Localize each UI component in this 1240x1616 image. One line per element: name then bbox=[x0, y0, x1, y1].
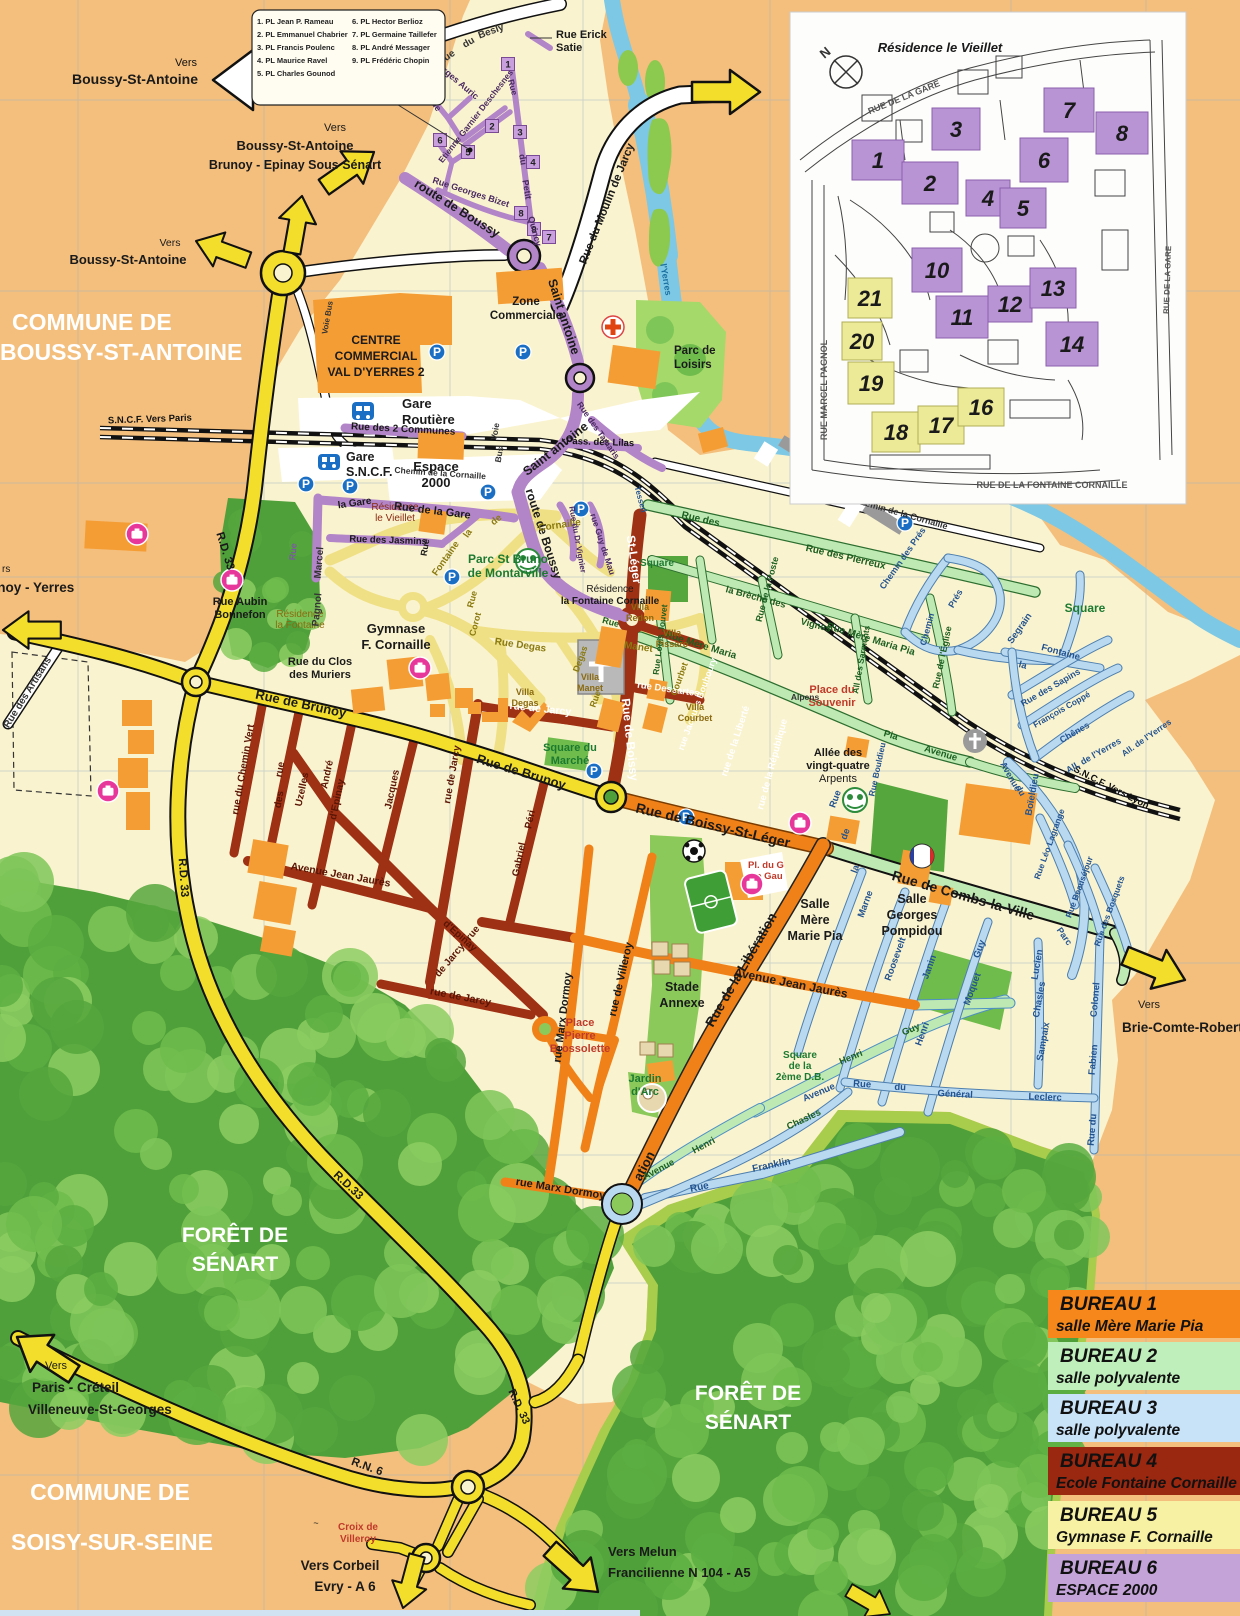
svg-text:Jardin: Jardin bbox=[628, 1073, 661, 1085]
svg-text:Mère: Mère bbox=[800, 913, 829, 927]
svg-text:2ème D.B.: 2ème D.B. bbox=[776, 1072, 825, 1083]
svg-text:le Vieillet: le Vieillet bbox=[375, 513, 415, 524]
svg-text:6: 6 bbox=[437, 136, 442, 147]
svg-text:BOUSSY-ST-ANTOINE: BOUSSY-ST-ANTOINE bbox=[0, 339, 242, 365]
svg-text:des Muriers: des Muriers bbox=[289, 669, 351, 681]
svg-text:Croix de: Croix de bbox=[338, 1522, 378, 1533]
svg-text:salle polyvalente: salle polyvalente bbox=[1056, 1370, 1180, 1387]
svg-text:Vers: Vers bbox=[1138, 999, 1161, 1011]
svg-text:P: P bbox=[519, 345, 527, 359]
svg-text:~: ~ bbox=[313, 1518, 318, 1528]
svg-text:Vers: Vers bbox=[175, 57, 198, 69]
svg-text:Square: Square bbox=[1065, 601, 1106, 615]
svg-text:Georges: Georges bbox=[887, 908, 938, 922]
svg-text:SÉNART: SÉNART bbox=[192, 1253, 279, 1276]
svg-text:P: P bbox=[590, 764, 598, 778]
svg-text:Gare: Gare bbox=[346, 450, 375, 464]
svg-text:7. PL Germaine Taillefer: 7. PL Germaine Taillefer bbox=[352, 30, 437, 39]
svg-text:VAL D'YERRES 2: VAL D'YERRES 2 bbox=[327, 365, 424, 379]
svg-text:Square: Square bbox=[640, 558, 674, 569]
svg-text:7: 7 bbox=[1063, 98, 1077, 123]
svg-text:2. PL Emmanuel Chabrier: 2. PL Emmanuel Chabrier bbox=[257, 30, 348, 39]
svg-text:Résidence le Vieillet: Résidence le Vieillet bbox=[878, 40, 1003, 55]
svg-text:rs: rs bbox=[2, 564, 10, 575]
svg-text:5. PL Charles Gounod: 5. PL Charles Gounod bbox=[257, 69, 336, 78]
svg-text:8: 8 bbox=[518, 209, 523, 220]
svg-text:BUREAU 5: BUREAU 5 bbox=[1060, 1505, 1158, 1526]
svg-text:P: P bbox=[302, 477, 310, 491]
svg-text:Vers Melun: Vers Melun bbox=[608, 1544, 677, 1559]
svg-text:1. PL Jean P. Rameau: 1. PL Jean P. Rameau bbox=[257, 17, 334, 26]
svg-text:Commerciale: Commerciale bbox=[490, 310, 562, 322]
svg-text:19: 19 bbox=[859, 371, 884, 396]
svg-text:Marie Pia: Marie Pia bbox=[788, 929, 844, 943]
svg-text:5: 5 bbox=[1017, 196, 1030, 221]
svg-text:Rue Erick: Rue Erick bbox=[556, 29, 608, 41]
svg-text:SOISY-SUR-SEINE: SOISY-SUR-SEINE bbox=[11, 1529, 213, 1555]
svg-text:du: du bbox=[894, 1082, 906, 1094]
svg-text:3: 3 bbox=[517, 128, 522, 139]
svg-text:Boussy-St-Antoine: Boussy-St-Antoine bbox=[72, 71, 198, 87]
svg-text:Alpens: Alpens bbox=[791, 692, 820, 702]
svg-text:BUREAU 4: BUREAU 4 bbox=[1060, 1451, 1158, 1472]
svg-text:Villa: Villa bbox=[581, 672, 600, 682]
svg-text:COMMUNE DE: COMMUNE DE bbox=[12, 309, 172, 335]
svg-text:20: 20 bbox=[849, 329, 875, 354]
svg-text:Loisirs: Loisirs bbox=[674, 359, 712, 371]
svg-text:Résidence: Résidence bbox=[586, 584, 634, 595]
svg-text:SÉNART: SÉNART bbox=[705, 1411, 792, 1434]
svg-text:Square du: Square du bbox=[543, 742, 597, 754]
svg-text:6: 6 bbox=[1038, 148, 1051, 173]
svg-text:RUE DE LA FONTAINE CORNAILLE: RUE DE LA FONTAINE CORNAILLE bbox=[977, 480, 1128, 490]
svg-text:COMMERCIAL: COMMERCIAL bbox=[335, 349, 418, 363]
svg-text:Villa: Villa bbox=[663, 628, 682, 638]
svg-text:3. PL Francis Poulenc: 3. PL Francis Poulenc bbox=[257, 43, 335, 52]
svg-text:13: 13 bbox=[1041, 276, 1065, 301]
svg-text:3: 3 bbox=[950, 117, 962, 142]
svg-text:Allée des: Allée des bbox=[814, 747, 862, 759]
svg-text:P: P bbox=[346, 479, 354, 493]
svg-text:Villeroy: Villeroy bbox=[340, 1534, 376, 1545]
svg-text:P: P bbox=[484, 485, 492, 499]
svg-text:COMMUNE DE: COMMUNE DE bbox=[30, 1479, 190, 1505]
svg-text:Redon: Redon bbox=[626, 613, 654, 623]
svg-text:Général: Général bbox=[937, 1088, 973, 1101]
svg-text:Rue Aubin: Rue Aubin bbox=[213, 596, 268, 608]
svg-text:Pierre: Pierre bbox=[564, 1030, 595, 1042]
svg-text:12: 12 bbox=[998, 292, 1023, 317]
svg-text:Rue: Rue bbox=[287, 543, 298, 561]
svg-text:Rue du Clos: Rue du Clos bbox=[288, 656, 352, 668]
svg-text:Marché: Marché bbox=[551, 755, 590, 767]
svg-text:BUREAU 2: BUREAU 2 bbox=[1060, 1346, 1158, 1367]
svg-text:Vers Corbeil: Vers Corbeil bbox=[301, 1558, 380, 1573]
svg-text:Salle: Salle bbox=[897, 892, 926, 906]
svg-text:17: 17 bbox=[929, 413, 955, 438]
svg-text:Brunoy - Epinay Sous Sénart: Brunoy - Epinay Sous Sénart bbox=[209, 158, 382, 172]
svg-text:P: P bbox=[433, 345, 441, 359]
svg-text:Vers: Vers bbox=[324, 122, 347, 134]
svg-text:Paris - Créteil: Paris - Créteil bbox=[32, 1380, 119, 1395]
svg-text:P: P bbox=[448, 570, 456, 584]
svg-text:Stade: Stade bbox=[665, 980, 699, 994]
svg-text:Villa: Villa bbox=[631, 602, 650, 612]
svg-text:vingt-quatre: vingt-quatre bbox=[806, 760, 870, 772]
svg-text:Pompidou: Pompidou bbox=[881, 924, 942, 938]
svg-text:1: 1 bbox=[872, 148, 884, 173]
svg-text:Ecole Fontaine Cornaille: Ecole Fontaine Cornaille bbox=[1056, 1475, 1237, 1492]
svg-text:Leclerc: Leclerc bbox=[1028, 1091, 1062, 1103]
svg-text:Bonnefon: Bonnefon bbox=[214, 609, 266, 621]
svg-text:4: 4 bbox=[530, 158, 536, 169]
svg-text:Manet: Manet bbox=[577, 683, 603, 693]
svg-text:d'Arc: d'Arc bbox=[631, 1086, 659, 1098]
svg-text:Rue: Rue bbox=[853, 1079, 872, 1091]
svg-text:6. PL Hector Berlioz: 6. PL Hector Berlioz bbox=[352, 17, 423, 26]
svg-text:Salle: Salle bbox=[800, 897, 829, 911]
svg-text:Place: Place bbox=[566, 1017, 595, 1029]
svg-text:Gare: Gare bbox=[402, 396, 432, 411]
svg-text:Boussy-St-Antoine: Boussy-St-Antoine bbox=[237, 138, 354, 153]
svg-text:Square: Square bbox=[783, 1050, 817, 1061]
svg-text:Pissaro: Pissaro bbox=[656, 639, 689, 649]
svg-text:BUREAU 3: BUREAU 3 bbox=[1060, 1398, 1158, 1419]
svg-text:2: 2 bbox=[489, 122, 494, 133]
svg-text:Pl. du G: Pl. du G bbox=[748, 860, 784, 871]
svg-text:salle Mère Marie Pia: salle Mère Marie Pia bbox=[1056, 1318, 1204, 1335]
svg-text:8: 8 bbox=[1116, 121, 1129, 146]
svg-text:Villa: Villa bbox=[686, 702, 705, 712]
svg-text:BUREAU 6: BUREAU 6 bbox=[1060, 1558, 1158, 1579]
svg-text:du: du bbox=[517, 153, 529, 166]
svg-text:Brunoy - Yerres: Brunoy - Yerres bbox=[0, 580, 74, 595]
svg-text:Gymnase F. Cornaille: Gymnase F. Cornaille bbox=[1056, 1529, 1213, 1546]
svg-text:Zone: Zone bbox=[512, 296, 539, 308]
svg-text:8. PL André Messager: 8. PL André Messager bbox=[352, 43, 430, 52]
svg-text:S.N.C.F.: S.N.C.F. bbox=[346, 465, 393, 479]
svg-text:FORÊT DE: FORÊT DE bbox=[182, 1223, 288, 1247]
svg-text:Francilienne N 104 - A5: Francilienne N 104 - A5 bbox=[608, 1565, 751, 1580]
svg-text:11: 11 bbox=[951, 305, 974, 330]
svg-text:21: 21 bbox=[857, 286, 882, 311]
svg-text:Annexe: Annexe bbox=[659, 996, 704, 1010]
svg-text:de la: de la bbox=[789, 1061, 812, 1072]
svg-text:Brie-Comte-Robert: Brie-Comte-Robert bbox=[1122, 1020, 1240, 1035]
svg-text:RUE MARCEL PAGNOL: RUE MARCEL PAGNOL bbox=[819, 339, 829, 440]
svg-text:18: 18 bbox=[884, 420, 909, 445]
svg-text:Arpents: Arpents bbox=[819, 773, 857, 785]
svg-text:16: 16 bbox=[969, 395, 994, 420]
svg-text:CENTRE: CENTRE bbox=[351, 333, 400, 347]
svg-text:Vers: Vers bbox=[159, 237, 180, 249]
svg-text:de Montarville: de Montarville bbox=[468, 566, 549, 580]
svg-text:9. PL Frédéric Chopin: 9. PL Frédéric Chopin bbox=[352, 56, 430, 65]
svg-text:BUREAU 1: BUREAU 1 bbox=[1060, 1294, 1157, 1315]
svg-text:Satie: Satie bbox=[556, 42, 582, 54]
svg-text:F. Cornaille: F. Cornaille bbox=[361, 637, 430, 652]
svg-text:Courbet: Courbet bbox=[678, 713, 713, 723]
svg-text:Gymnase: Gymnase bbox=[367, 621, 426, 636]
svg-text:7: 7 bbox=[546, 233, 551, 244]
svg-text:Evry - A 6: Evry - A 6 bbox=[314, 1579, 376, 1594]
svg-text:ESPACE 2000: ESPACE 2000 bbox=[1056, 1582, 1158, 1599]
svg-text:Degas: Degas bbox=[511, 698, 538, 708]
svg-text:Vers: Vers bbox=[45, 1360, 68, 1372]
svg-text:Villa: Villa bbox=[516, 687, 535, 697]
svg-text:Parc St Bruno: Parc St Bruno bbox=[468, 552, 548, 566]
svg-text:2: 2 bbox=[923, 171, 937, 196]
svg-text:salle polyvalente: salle polyvalente bbox=[1056, 1422, 1180, 1439]
svg-text:Parc de: Parc de bbox=[674, 345, 716, 357]
svg-text:4: 4 bbox=[981, 186, 994, 211]
svg-text:14: 14 bbox=[1060, 332, 1084, 357]
svg-text:10: 10 bbox=[925, 258, 950, 283]
svg-text:Boussy-St-Antoine: Boussy-St-Antoine bbox=[70, 252, 187, 267]
svg-text:4. PL Maurice Ravel: 4. PL Maurice Ravel bbox=[257, 56, 327, 65]
svg-text:FORÊT DE: FORÊT DE bbox=[695, 1381, 801, 1405]
svg-text:Villeneuve-St-Georges: Villeneuve-St-Georges bbox=[28, 1402, 172, 1417]
